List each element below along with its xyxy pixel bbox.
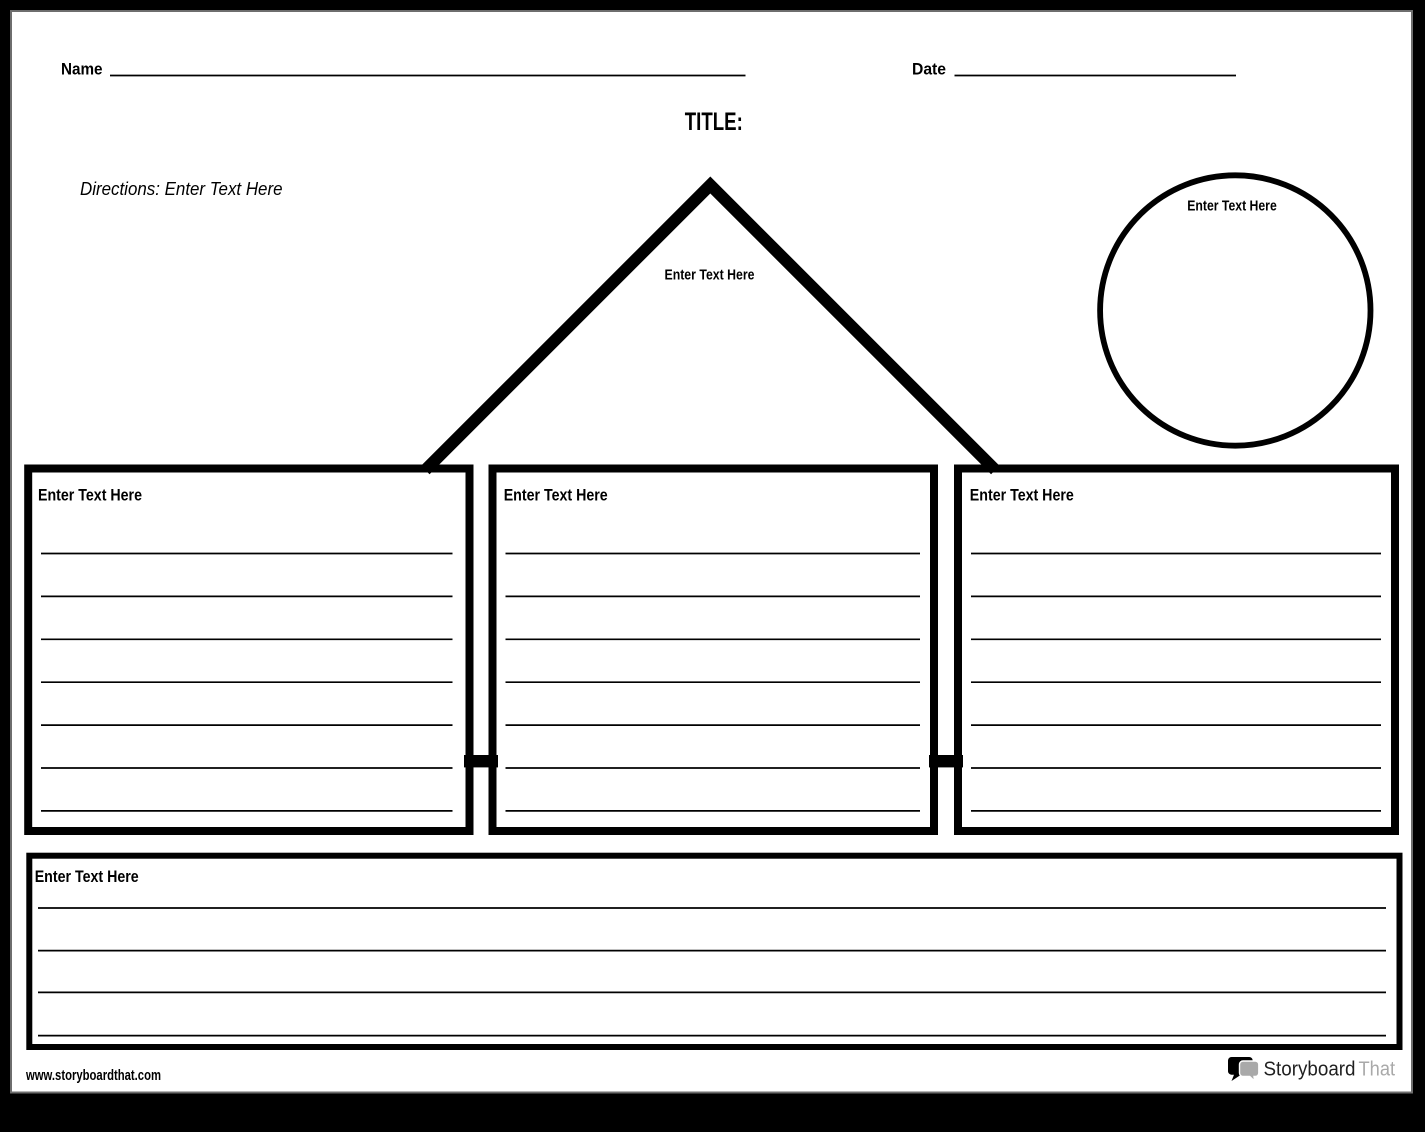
svg-text:Enter Text Here: Enter Text Here [504, 487, 608, 505]
svg-text:Enter Text Here: Enter Text Here [1187, 198, 1277, 215]
svg-text:Enter Text Here: Enter Text Here [38, 487, 142, 505]
svg-text:Name: Name [61, 60, 103, 79]
svg-text:Storyboard: Storyboard [1264, 1058, 1356, 1081]
svg-text:Enter Text Here: Enter Text Here [35, 868, 139, 886]
svg-text:Enter Text Here: Enter Text Here [970, 487, 1074, 505]
svg-text:That: That [1359, 1058, 1396, 1081]
svg-text:Date: Date [912, 60, 946, 79]
svg-text:TITLE:: TITLE: [685, 108, 743, 136]
svg-text:Enter Text Here: Enter Text Here [665, 267, 755, 284]
svg-text:Directions: Enter Text Here: Directions: Enter Text Here [80, 179, 283, 199]
svg-text:www.storyboardthat.com: www.storyboardthat.com [25, 1068, 161, 1084]
